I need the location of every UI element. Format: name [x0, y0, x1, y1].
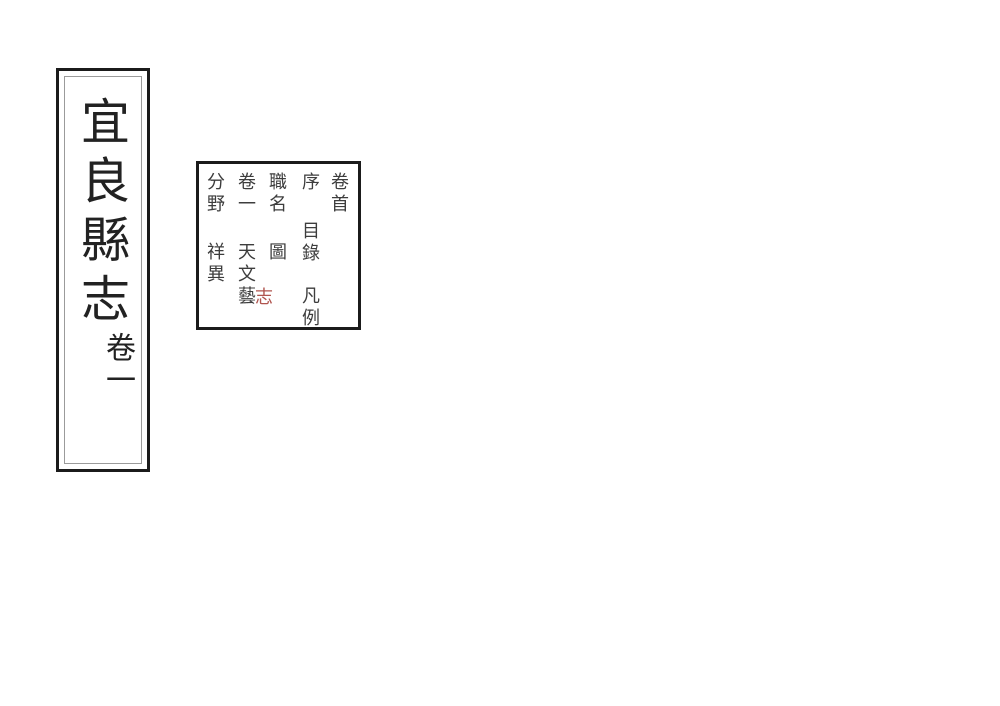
toc-red-annotation-zhi: 志: [254, 287, 272, 309]
toc-entry-maps: 圖: [268, 242, 286, 264]
toc-entry-volume-one: 卷一: [237, 172, 255, 216]
toc-entry-official-titles: 職名: [268, 172, 286, 216]
toc-entry-field-allocation: 分野: [206, 172, 224, 216]
toc-entry-explanatory-notes: 凡例: [301, 286, 319, 330]
toc-entry-table-of-contents: 目錄: [301, 221, 319, 265]
toc-entry-astronomy: 天文: [237, 242, 255, 286]
book-page: 宜良縣志 卷一 卷首 序 目錄 凡例 職名 圖 卷一 天文 藝 志 分野 祥異: [0, 0, 1000, 706]
toc-entry-auspicious-anomalies: 祥異: [206, 242, 224, 286]
toc-entry-front-matter: 卷首: [330, 172, 348, 216]
volume-label: 卷一: [102, 332, 132, 396]
toc-entry-preface: 序: [301, 172, 319, 194]
book-title: 宜良縣志: [77, 96, 126, 332]
